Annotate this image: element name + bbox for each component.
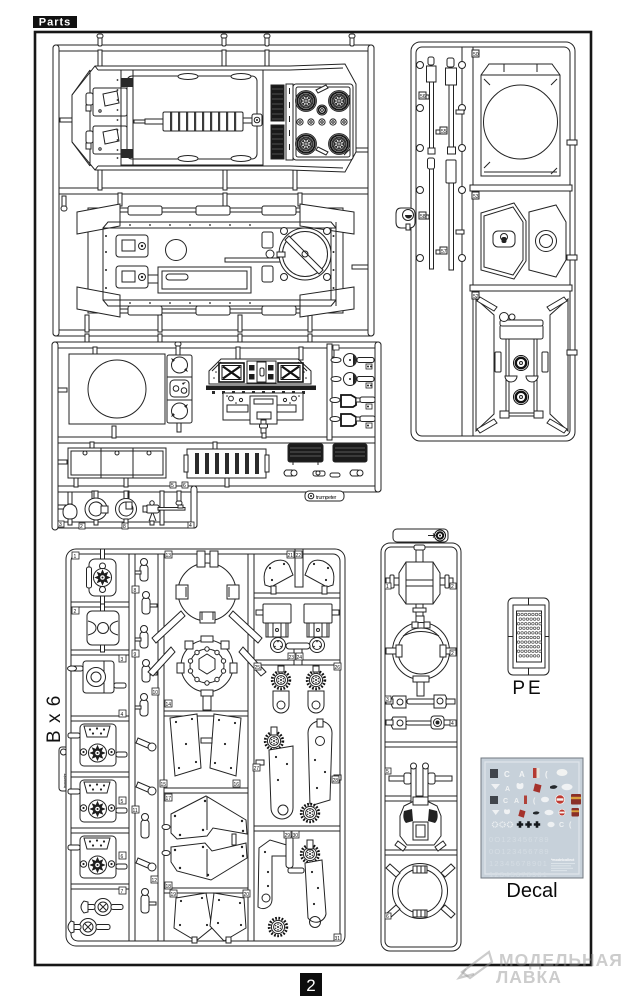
svg-text:6: 6 [386, 914, 389, 920]
svg-text:trumpeter: trumpeter [316, 495, 337, 501]
svg-text:6: 6 [183, 483, 186, 489]
svg-text:20: 20 [244, 892, 250, 898]
svg-text:30: 30 [293, 833, 299, 839]
svg-text:23: 23 [289, 655, 295, 661]
svg-text:12345678901: 12345678901 [489, 870, 548, 879]
svg-text:5: 5 [386, 769, 389, 775]
svg-text:22: 22 [296, 553, 302, 559]
svg-text:2: 2 [80, 524, 83, 530]
svg-text:53: 53 [473, 194, 479, 200]
svg-text:1: 1 [386, 584, 389, 590]
svg-text:2: 2 [451, 651, 454, 657]
svg-text:11: 11 [133, 808, 138, 814]
svg-text:A: A [514, 798, 519, 805]
svg-text:26: 26 [335, 665, 341, 671]
svg-text:56: 56 [420, 94, 426, 100]
svg-text:2: 2 [306, 976, 315, 995]
svg-text:7: 7 [121, 889, 124, 895]
svg-text:14: 14 [166, 702, 172, 708]
svg-text:27: 27 [254, 766, 260, 772]
svg-text:3: 3 [386, 697, 389, 703]
svg-text:18: 18 [166, 884, 172, 890]
svg-text:6: 6 [121, 854, 124, 860]
svg-text:PE: PE [512, 678, 543, 699]
svg-text:2: 2 [74, 609, 77, 615]
svg-text:21: 21 [288, 553, 294, 559]
svg-text:Parts: Parts [39, 17, 72, 29]
svg-text:3: 3 [121, 657, 124, 663]
svg-text:(: ( [545, 770, 548, 779]
svg-text:5: 5 [121, 799, 124, 805]
svg-text:ЛАВКА: ЛАВКА [496, 967, 562, 987]
svg-text:C: C [559, 822, 564, 829]
svg-text:Decal: Decal [506, 880, 557, 902]
svg-text:16: 16 [234, 782, 240, 788]
svg-text:9: 9 [134, 652, 137, 658]
svg-text:0O123456789: 0O123456789 [489, 847, 550, 856]
svg-text:12345678901: 12345678901 [489, 859, 548, 868]
svg-text:A: A [505, 786, 510, 793]
svg-text:57: 57 [441, 249, 447, 255]
svg-text:55: 55 [441, 129, 447, 135]
svg-text:10: 10 [153, 690, 159, 696]
svg-text:4: 4 [121, 712, 124, 718]
svg-text:28: 28 [333, 778, 339, 784]
svg-text:A: A [519, 770, 525, 779]
svg-text:2: 2 [451, 584, 454, 590]
svg-text:15: 15 [161, 782, 167, 788]
svg-text:4: 4 [451, 721, 454, 727]
svg-text:29: 29 [285, 833, 291, 839]
svg-text:C: C [503, 798, 508, 805]
svg-text:58: 58 [420, 214, 426, 220]
svg-text:12: 12 [152, 878, 158, 884]
svg-text:24: 24 [297, 655, 303, 661]
svg-text:*modelcollect: *modelcollect [551, 858, 575, 862]
svg-text:50: 50 [473, 52, 479, 58]
svg-text:25: 25 [255, 665, 261, 671]
svg-text:17: 17 [166, 796, 172, 802]
svg-text:3: 3 [59, 522, 62, 528]
svg-text:0O123456789: 0O123456789 [489, 835, 550, 844]
svg-text:8: 8 [123, 524, 126, 530]
svg-text:1: 1 [74, 554, 77, 560]
svg-text:8: 8 [134, 588, 137, 594]
svg-text:C: C [504, 770, 510, 779]
svg-text:13: 13 [166, 553, 172, 559]
svg-text:5: 5 [171, 483, 174, 489]
svg-text:31: 31 [335, 936, 341, 942]
svg-text:4: 4 [189, 523, 192, 529]
svg-text:B x 6: B x 6 [44, 695, 65, 743]
svg-text:19: 19 [171, 892, 177, 898]
